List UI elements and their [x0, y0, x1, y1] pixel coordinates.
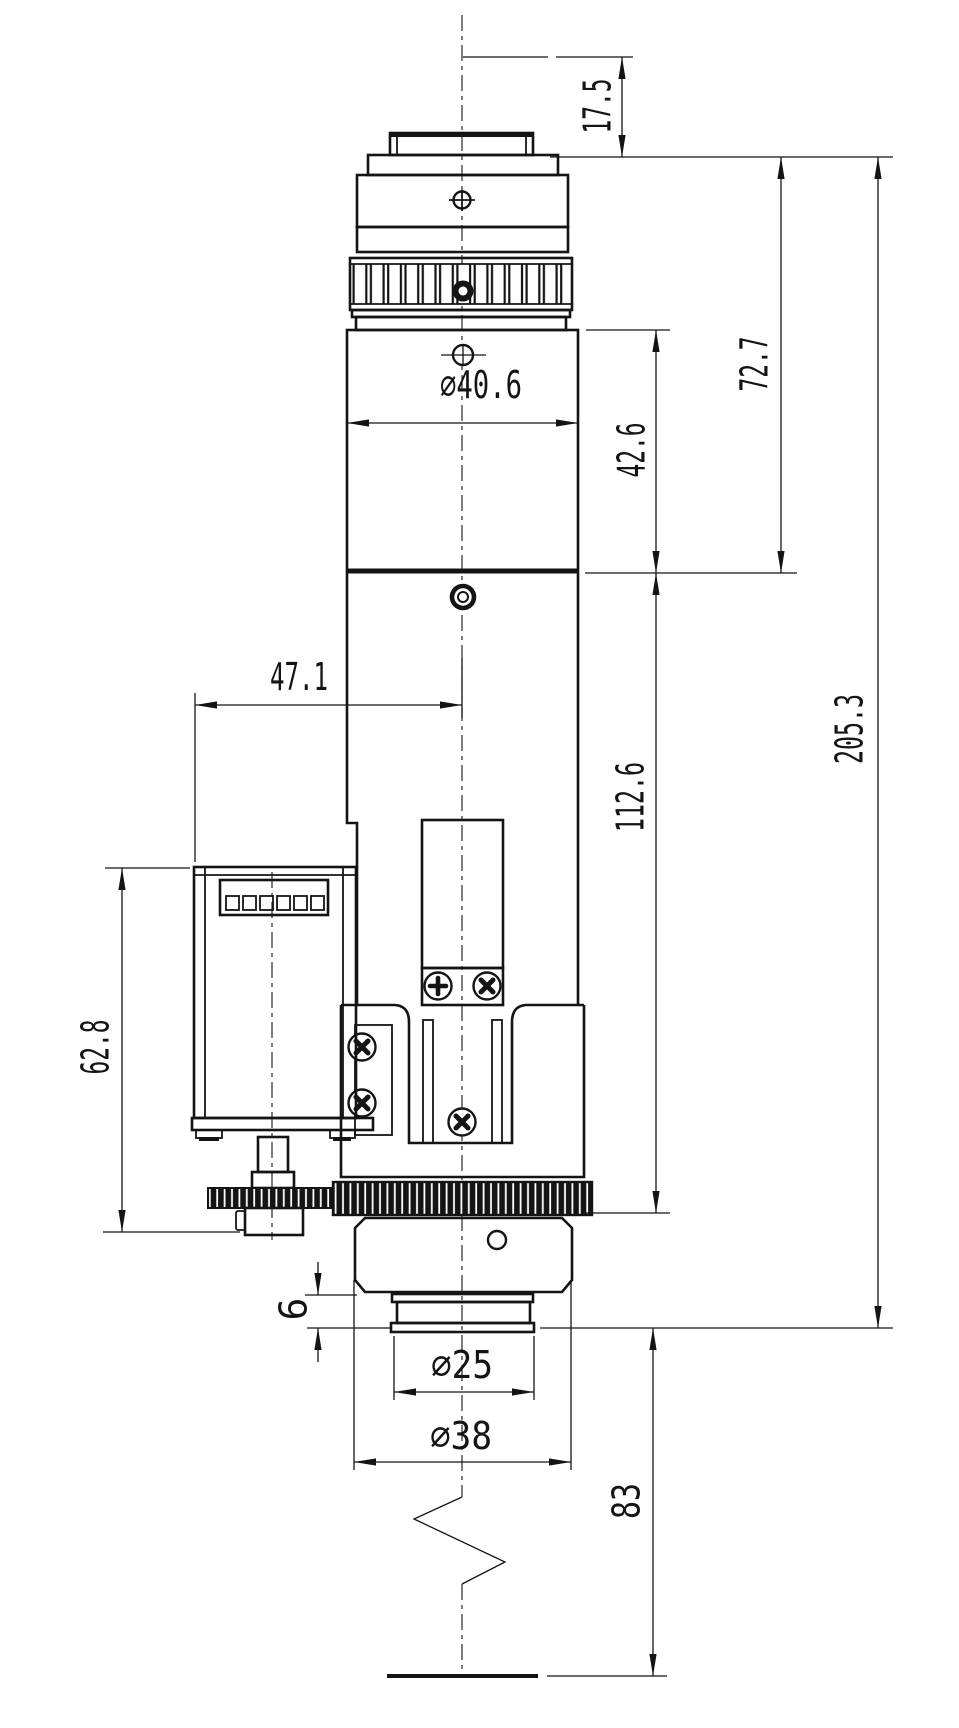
dim-top-flange-offset: 17.5 [550, 57, 893, 157]
dim-label: 72.7 [733, 337, 777, 392]
break-zigzag [414, 1497, 505, 1584]
gear-hub [245, 1208, 303, 1235]
tip-barrel [397, 1302, 530, 1323]
phillips-screw-icon [349, 1090, 376, 1117]
screw-icon [449, 190, 475, 211]
knurled-ring-top [350, 258, 572, 310]
dim-label: 17.5 [576, 79, 620, 134]
dim-label: 42.6 [610, 423, 654, 478]
motor-flange [192, 1118, 373, 1130]
dim-label: 6 [272, 1298, 316, 1321]
knurled-focus-ring [333, 1182, 592, 1215]
dim-tip-step-height: 6 [272, 1262, 391, 1362]
motor-shaft [258, 1137, 288, 1172]
dim-label: 62.8 [74, 1020, 118, 1075]
motor-housing [194, 867, 356, 1118]
connector-port [220, 880, 328, 915]
phillips-screw-icon [349, 1034, 376, 1061]
dim-tip-diameter: ∅25 [394, 1336, 534, 1400]
dim-lower-section-height: 112.6 [585, 573, 670, 1213]
housing-hole [488, 1231, 506, 1249]
phillips-screw-icon [449, 1109, 476, 1136]
dim-label: 47.1 [270, 655, 328, 699]
dim-label: 205.3 [828, 694, 872, 764]
dim-motor-unit-height: 62.8 [74, 868, 241, 1232]
set-screw-icon [236, 1211, 245, 1230]
motor-unit [192, 867, 373, 1235]
dim-overall-height: 205.3 [540, 157, 893, 1328]
dim-label: ∅25 [431, 1343, 493, 1387]
pinion-gear [208, 1188, 333, 1208]
hex-socket-screw-icon [452, 586, 474, 608]
dim-label: 83 [605, 1483, 649, 1519]
phillips-screw-icon [474, 973, 501, 1000]
shaft-coupler [252, 1172, 294, 1188]
dim-upper-section-height: 72.7 [733, 157, 785, 573]
dim-label: 112.6 [609, 762, 653, 832]
phillips-screw-icon [425, 973, 452, 1000]
lower-housing [355, 1218, 572, 1292]
break-and-object-plane [387, 1497, 667, 1676]
technical-drawing-page: 17.5 72.7 205.3 42.6 112.6 ∅40.6 [0, 0, 959, 1728]
dim-label: ∅40.6 [440, 363, 522, 407]
dim-working-distance: 83 [605, 1328, 657, 1676]
mount-flange [368, 155, 558, 175]
lens-assembly-drawing: 17.5 72.7 205.3 42.6 112.6 ∅40.6 [0, 0, 959, 1728]
dim-label: ∅38 [430, 1414, 492, 1458]
spacer-ring-b [356, 317, 566, 330]
